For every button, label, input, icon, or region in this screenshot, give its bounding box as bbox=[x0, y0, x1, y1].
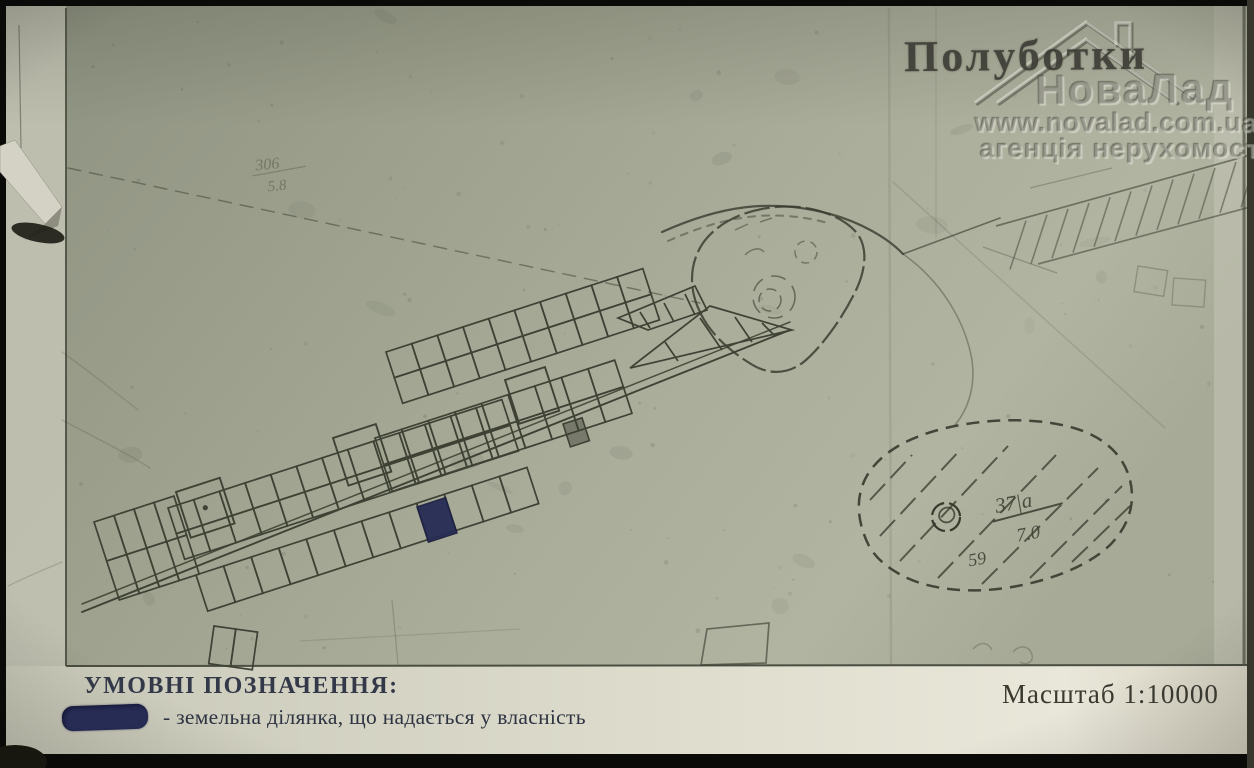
photographed-map-document: 37|а 7.0 59 306 5.8 bbox=[0, 0, 1254, 768]
legend-heading: УМОВНІ ПОЗНАЧЕННЯ: bbox=[84, 673, 399, 700]
legend-parcel-swatch bbox=[62, 704, 149, 732]
watermark-tagline: агенція нерухомості bbox=[980, 134, 1254, 165]
legend-item-label: - земельна ділянка, що надається у власн… bbox=[163, 705, 586, 730]
scale-label: Масштаб 1:10000 bbox=[1002, 679, 1219, 710]
legend-item: - земельна ділянка, що надається у власн… bbox=[62, 705, 586, 730]
